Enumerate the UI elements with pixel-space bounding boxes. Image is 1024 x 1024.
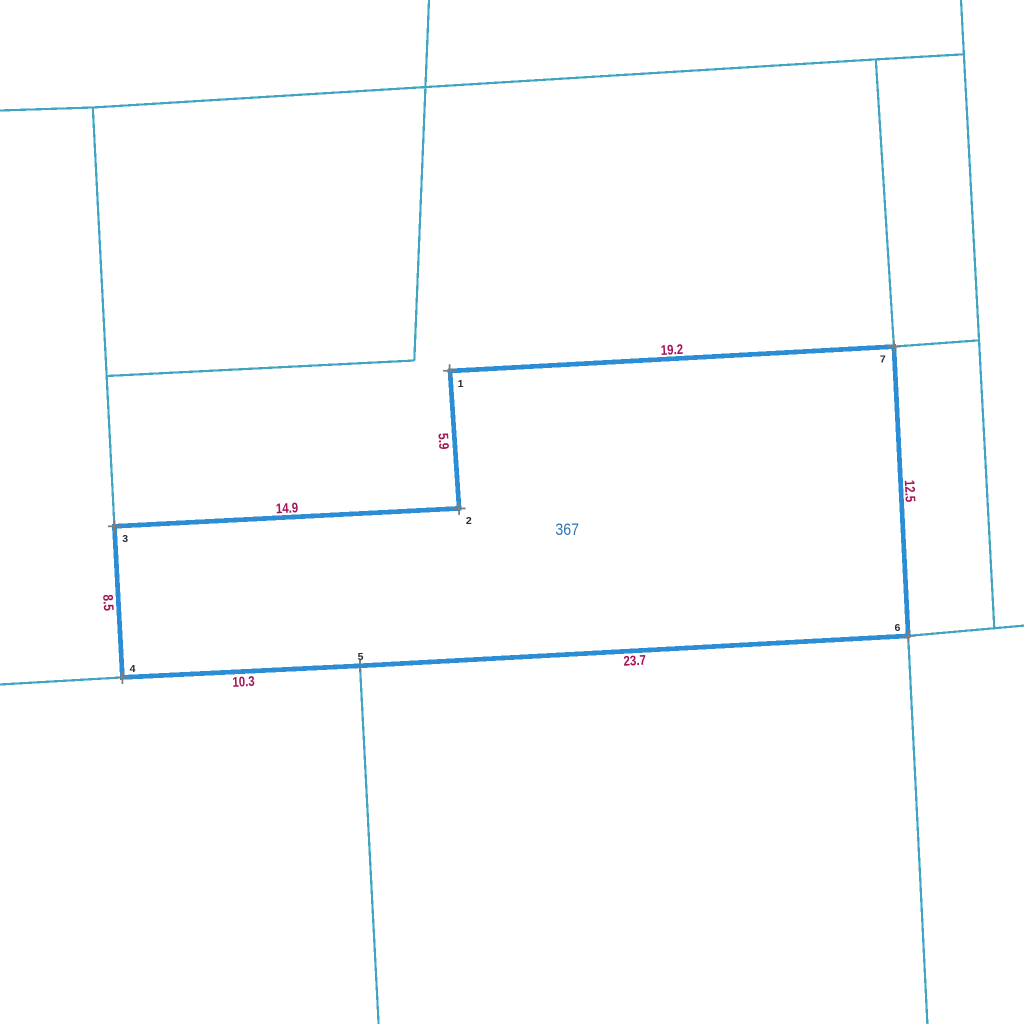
- svg-text:2: 2: [466, 515, 472, 527]
- svg-text:5.9: 5.9: [435, 432, 452, 450]
- svg-text:367: 367: [555, 520, 579, 539]
- svg-text:8.5: 8.5: [100, 594, 117, 612]
- svg-text:23.7: 23.7: [623, 652, 647, 669]
- svg-text:10.3: 10.3: [232, 673, 255, 690]
- svg-text:19.2: 19.2: [660, 341, 683, 358]
- svg-text:1: 1: [458, 378, 464, 390]
- svg-text:7: 7: [880, 354, 886, 366]
- svg-text:3: 3: [122, 533, 128, 545]
- svg-text:12.5: 12.5: [902, 479, 919, 502]
- svg-text:4: 4: [130, 663, 136, 675]
- svg-text:5: 5: [358, 651, 364, 663]
- svg-text:6: 6: [894, 622, 900, 634]
- svg-text:14.9: 14.9: [275, 499, 298, 516]
